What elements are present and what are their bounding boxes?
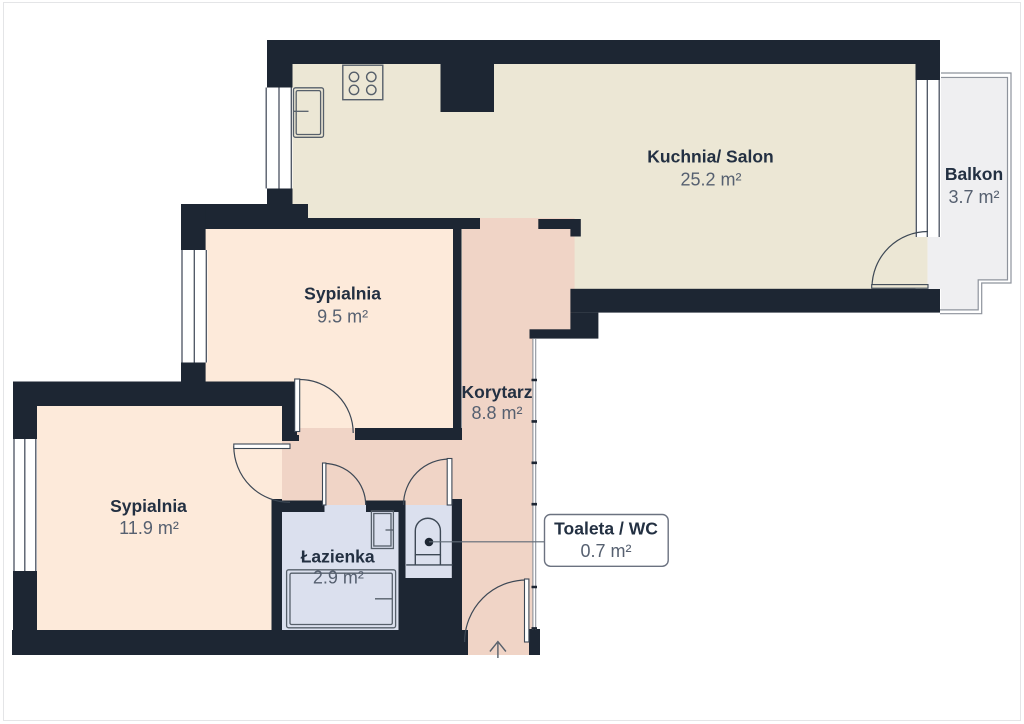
svg-text:Korytarz: Korytarz bbox=[462, 382, 533, 402]
svg-text:3.7 m²: 3.7 m² bbox=[948, 187, 999, 207]
svg-text:Łazienka: Łazienka bbox=[301, 547, 375, 567]
svg-text:Toaleta / WC: Toaleta / WC bbox=[554, 519, 658, 539]
svg-text:Kuchnia/ Salon: Kuchnia/ Salon bbox=[647, 147, 773, 167]
svg-text:0.7 m²: 0.7 m² bbox=[580, 541, 631, 561]
svg-text:Sypialnia: Sypialnia bbox=[110, 496, 187, 516]
svg-text:Sypialnia: Sypialnia bbox=[304, 284, 381, 304]
svg-text:25.2 m²: 25.2 m² bbox=[680, 170, 741, 190]
svg-text:11.9 m²: 11.9 m² bbox=[119, 518, 179, 538]
svg-text:8.8 m²: 8.8 m² bbox=[471, 403, 522, 423]
svg-text:2.9 m²: 2.9 m² bbox=[313, 568, 364, 588]
svg-text:Balkon: Balkon bbox=[945, 164, 1003, 184]
svg-text:9.5 m²: 9.5 m² bbox=[317, 307, 368, 327]
